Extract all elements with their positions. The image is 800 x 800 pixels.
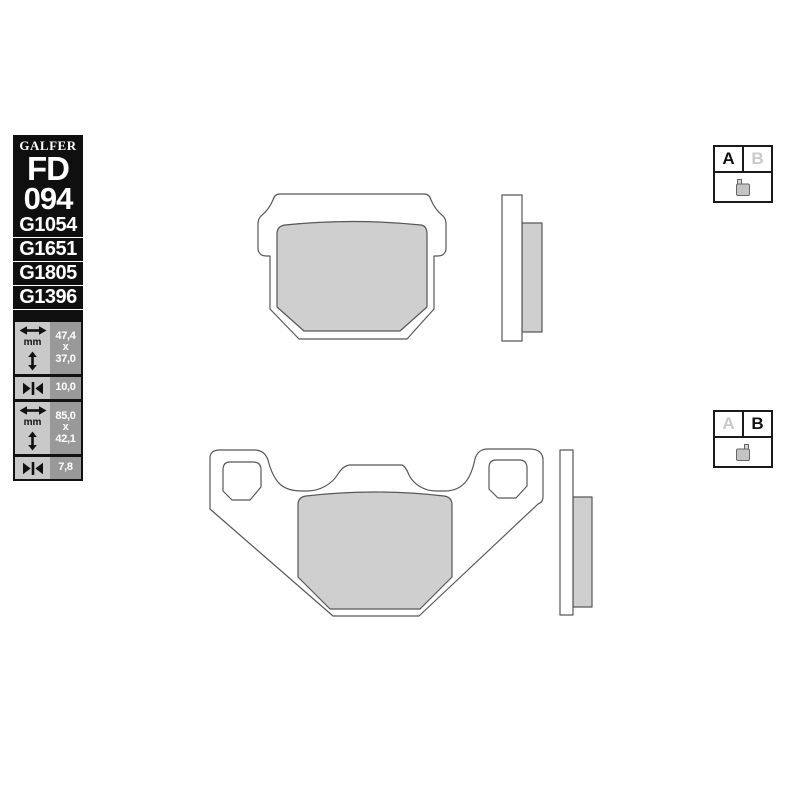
- product-diagram-page: { "sidebar": { "brand": "GALFER", "serie…: [0, 0, 800, 800]
- friction-pad-b-side: [573, 497, 592, 607]
- pad-a-front-drawing: [250, 188, 450, 346]
- option-b[interactable]: B: [744, 412, 771, 436]
- friction-pad-a-side: [522, 223, 542, 332]
- option-b[interactable]: B: [744, 147, 771, 171]
- mounting-hole-left: [223, 462, 261, 500]
- dimension-value: 10,0: [50, 377, 81, 399]
- mounting-hole-right: [489, 460, 527, 498]
- part-info-sidebar: GALFER FD 094 G1054 G1651 G1805 G1396 mm: [13, 135, 83, 481]
- dimensions-block: mm 47,4 x 37,0: [13, 322, 83, 481]
- friction-pad-a: [277, 222, 427, 332]
- backing-plate-a-side: [502, 195, 522, 341]
- selector-icon-cell: [715, 438, 771, 466]
- pad-a-side-drawing: [495, 188, 547, 346]
- dimension-icons: mm: [15, 322, 50, 374]
- dim-height: 42,1: [55, 434, 75, 446]
- part-number: 094: [13, 184, 83, 214]
- dimension-icons: mm: [15, 402, 50, 454]
- compound-code: G1054: [13, 214, 83, 237]
- up-down-arrow-icon: [28, 431, 37, 451]
- inward-arrows-icon: [22, 462, 44, 475]
- backing-plate-b-side: [560, 450, 573, 615]
- unit-label: mm: [24, 418, 42, 427]
- option-a[interactable]: A: [715, 147, 744, 171]
- dim-height: 37,0: [55, 354, 75, 366]
- dimension-icons: [15, 457, 50, 479]
- inward-arrows-icon: [22, 382, 44, 395]
- dimension-icons: [15, 377, 50, 399]
- option-a[interactable]: A: [715, 412, 744, 436]
- compound-code: G1396: [13, 285, 83, 310]
- compound-code: G1651: [13, 237, 83, 261]
- pad-position-selector-b: A B: [713, 410, 773, 468]
- left-right-arrow-icon: [19, 406, 47, 415]
- pad-b-front-drawing: [203, 442, 551, 624]
- pad-position-selector-a: A B: [713, 145, 773, 203]
- unit-label: mm: [24, 338, 42, 347]
- dimension-row-size-a: mm 47,4 x 37,0: [15, 322, 81, 374]
- selector-options: A B: [715, 147, 771, 173]
- part-id-block: GALFER FD 094 G1054 G1651 G1805 G1396: [13, 135, 83, 322]
- selector-icon-cell: [715, 173, 771, 201]
- brake-pad-icon: [733, 178, 753, 197]
- brake-pad-icon: [733, 443, 753, 462]
- selector-options: A B: [715, 412, 771, 438]
- up-down-arrow-icon: [28, 351, 37, 371]
- friction-pad-b: [298, 492, 452, 609]
- dimension-row-thickness-b: 7,8: [15, 457, 81, 479]
- dim-thickness: 10,0: [55, 382, 75, 394]
- dim-thickness: 7,8: [58, 462, 72, 474]
- dimension-value: 85,0 x 42,1: [50, 402, 81, 454]
- compound-code: G1805: [13, 261, 83, 285]
- dimension-row-thickness-a: 10,0: [15, 377, 81, 399]
- dimension-value: 47,4 x 37,0: [50, 322, 81, 374]
- dimension-value: 7,8: [50, 457, 81, 479]
- dimension-row-size-b: mm 85,0 x 42,1: [15, 402, 81, 454]
- part-series: FD: [13, 153, 83, 184]
- pad-b-side-drawing: [553, 442, 597, 624]
- left-right-arrow-icon: [19, 326, 47, 335]
